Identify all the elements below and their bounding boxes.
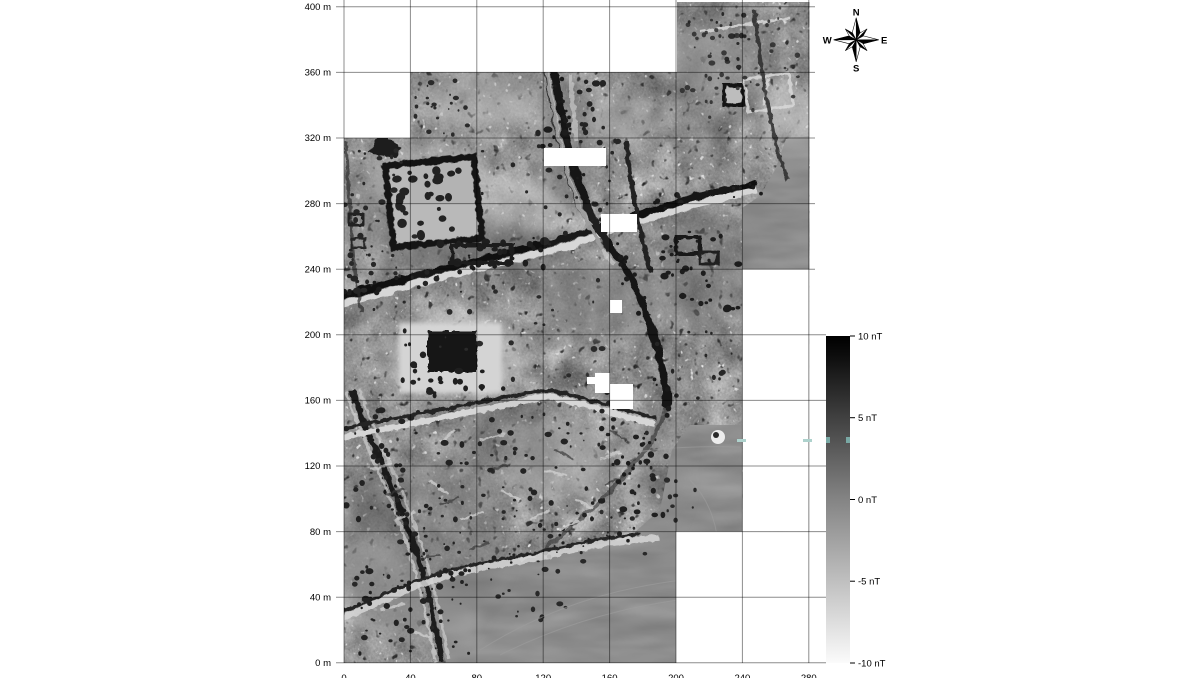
svg-text:5 nT: 5 nT — [858, 413, 877, 424]
svg-text:200: 200 — [668, 673, 684, 678]
svg-text:N: N — [853, 8, 860, 19]
svg-text:200 m: 200 m — [305, 330, 331, 341]
svg-text:280: 280 — [801, 673, 817, 678]
svg-text:240 m: 240 m — [305, 264, 331, 275]
svg-text:S: S — [853, 63, 859, 74]
svg-text:10 nT: 10 nT — [858, 332, 882, 343]
svg-text:120: 120 — [535, 673, 551, 678]
svg-text:40: 40 — [405, 673, 416, 678]
svg-text:0 m: 0 m — [315, 658, 331, 669]
svg-text:80: 80 — [472, 673, 483, 678]
svg-text:0 nT: 0 nT — [858, 495, 877, 506]
svg-text:160: 160 — [602, 673, 618, 678]
svg-text:120 m: 120 m — [305, 461, 331, 472]
svg-text:-5 nT: -5 nT — [858, 577, 880, 588]
svg-text:0: 0 — [341, 673, 346, 678]
svg-text:W: W — [823, 35, 832, 46]
svg-text:400 m: 400 m — [305, 2, 331, 13]
svg-text:160 m: 160 m — [305, 396, 331, 407]
svg-text:40 m: 40 m — [310, 592, 331, 603]
svg-text:E: E — [881, 35, 887, 46]
svg-text:280 m: 280 m — [305, 199, 331, 210]
svg-text:320 m: 320 m — [305, 133, 331, 144]
svg-text:-10 nT: -10 nT — [858, 659, 886, 670]
svg-text:240: 240 — [734, 673, 750, 678]
svg-text:80 m: 80 m — [310, 527, 331, 538]
svg-text:360 m: 360 m — [305, 68, 331, 79]
